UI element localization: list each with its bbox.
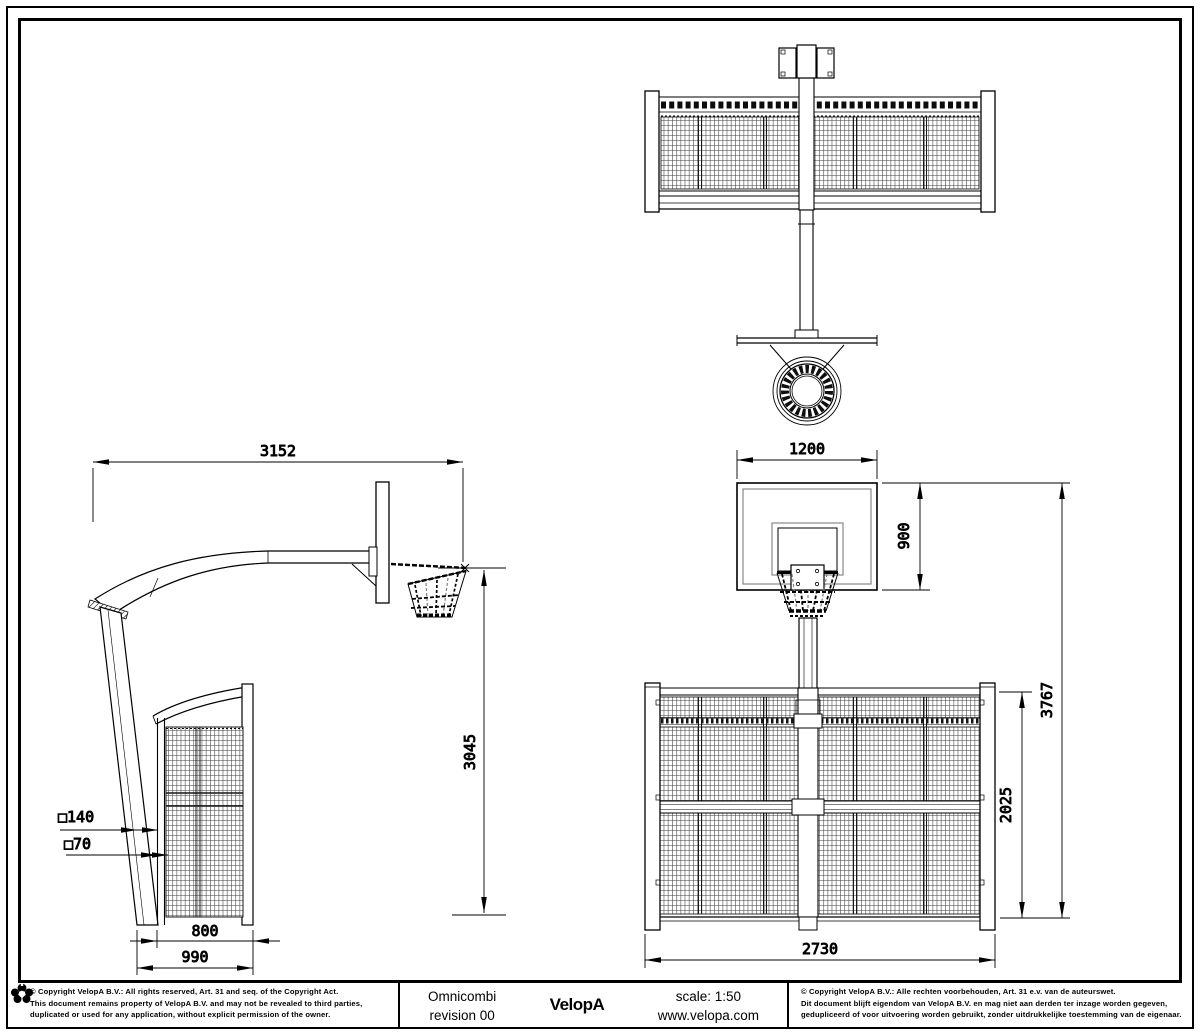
basket-side bbox=[391, 564, 469, 617]
dim-label-arm-reach: 3152 bbox=[260, 442, 296, 460]
copyright-nl-line2: Dit document blijft eigendom van VelopA … bbox=[801, 998, 1192, 1010]
wall-post-right-plan bbox=[981, 91, 995, 212]
revision: revision 00 bbox=[428, 1006, 496, 1025]
title-strip: © Copyright VelopA B.V.: All rights rese… bbox=[8, 983, 1192, 1028]
brand-logo: VelopA bbox=[550, 998, 605, 1013]
title-block: Omnicombi revision 00 VelopA scale: 1:50… bbox=[398, 983, 789, 1028]
dim-label-backboard-width: 1200 bbox=[789, 440, 825, 458]
velopa-flower-icon bbox=[8, 983, 36, 1005]
product-name: Omnicombi bbox=[428, 987, 496, 1006]
copyright-en-line2: This document remains property of VelopA… bbox=[30, 998, 398, 1010]
dimension-arm-reach: 3152 bbox=[93, 442, 463, 562]
plan-view bbox=[645, 45, 995, 425]
copyright-nl-line3: gedupliceerd of voor uitvoering worden g… bbox=[801, 1009, 1192, 1021]
document-title: Omnicombi revision 00 bbox=[428, 987, 496, 1025]
rebound-wall-front bbox=[645, 683, 995, 930]
dimension-tube-section: □70 bbox=[64, 835, 168, 858]
cantilever-arm bbox=[95, 551, 376, 614]
website: www.velopa.com bbox=[658, 1006, 759, 1025]
dimension-backboard-height: 900 bbox=[882, 483, 1070, 590]
dimension-ring-height: 3045 bbox=[438, 568, 506, 915]
pole-plan bbox=[799, 78, 814, 210]
dim-label-wall-height: 2025 bbox=[997, 787, 1015, 823]
side-view bbox=[88, 482, 469, 925]
dimension-backboard-width: 1200 bbox=[737, 440, 877, 479]
dimension-wall-width: 2730 bbox=[645, 934, 995, 968]
dim-label-overall-height: 3767 bbox=[1038, 682, 1056, 718]
basketball-ring-plan bbox=[773, 357, 841, 425]
backboard-side bbox=[376, 482, 389, 603]
copyright-dutch: © Copyright VelopA B.V.: Alle rechten vo… bbox=[789, 983, 1192, 1028]
dim-label-tube-section: □70 bbox=[64, 835, 91, 853]
copyright-en-line3: duplicated or used for any application, … bbox=[30, 1009, 398, 1021]
main-pole-side bbox=[100, 607, 158, 925]
brand-name: VelopA bbox=[550, 996, 605, 1013]
copyright-english: © Copyright VelopA B.V.: All rights rese… bbox=[8, 983, 398, 1028]
mesh-panel-side bbox=[166, 727, 243, 917]
technical-drawing: 3152 3045 □140 □70 bbox=[0, 0, 1200, 983]
dim-label-wall-width: 2730 bbox=[802, 940, 838, 958]
dimension-overall-height: 3767 bbox=[1000, 483, 1070, 918]
dim-label-wall-depth: 800 bbox=[191, 922, 218, 940]
dimension-wall-height: 2025 bbox=[997, 692, 1032, 918]
pole-cap-plan bbox=[797, 45, 816, 78]
dim-label-backboard-height: 900 bbox=[895, 522, 913, 549]
dim-label-pole-section: □140 bbox=[58, 808, 94, 826]
front-view bbox=[645, 483, 995, 930]
drawing-sheet: 3152 3045 □140 □70 bbox=[0, 0, 1200, 1033]
wall-post-left-plan bbox=[645, 91, 659, 212]
dim-label-ring-height: 3045 bbox=[461, 734, 479, 770]
scale-value: scale: 1:50 bbox=[658, 987, 759, 1006]
wall-back-post-side bbox=[242, 684, 253, 925]
pole-front bbox=[799, 618, 817, 690]
scale-block: scale: 1:50 www.velopa.com bbox=[658, 987, 759, 1025]
copyright-en-line1: © Copyright VelopA B.V.: All rights rese… bbox=[30, 986, 398, 998]
copyright-nl-line1: © Copyright VelopA B.V.: Alle rechten vo… bbox=[801, 986, 1192, 998]
backboard-plan bbox=[737, 330, 877, 346]
dim-label-footprint-depth: 990 bbox=[181, 948, 208, 966]
